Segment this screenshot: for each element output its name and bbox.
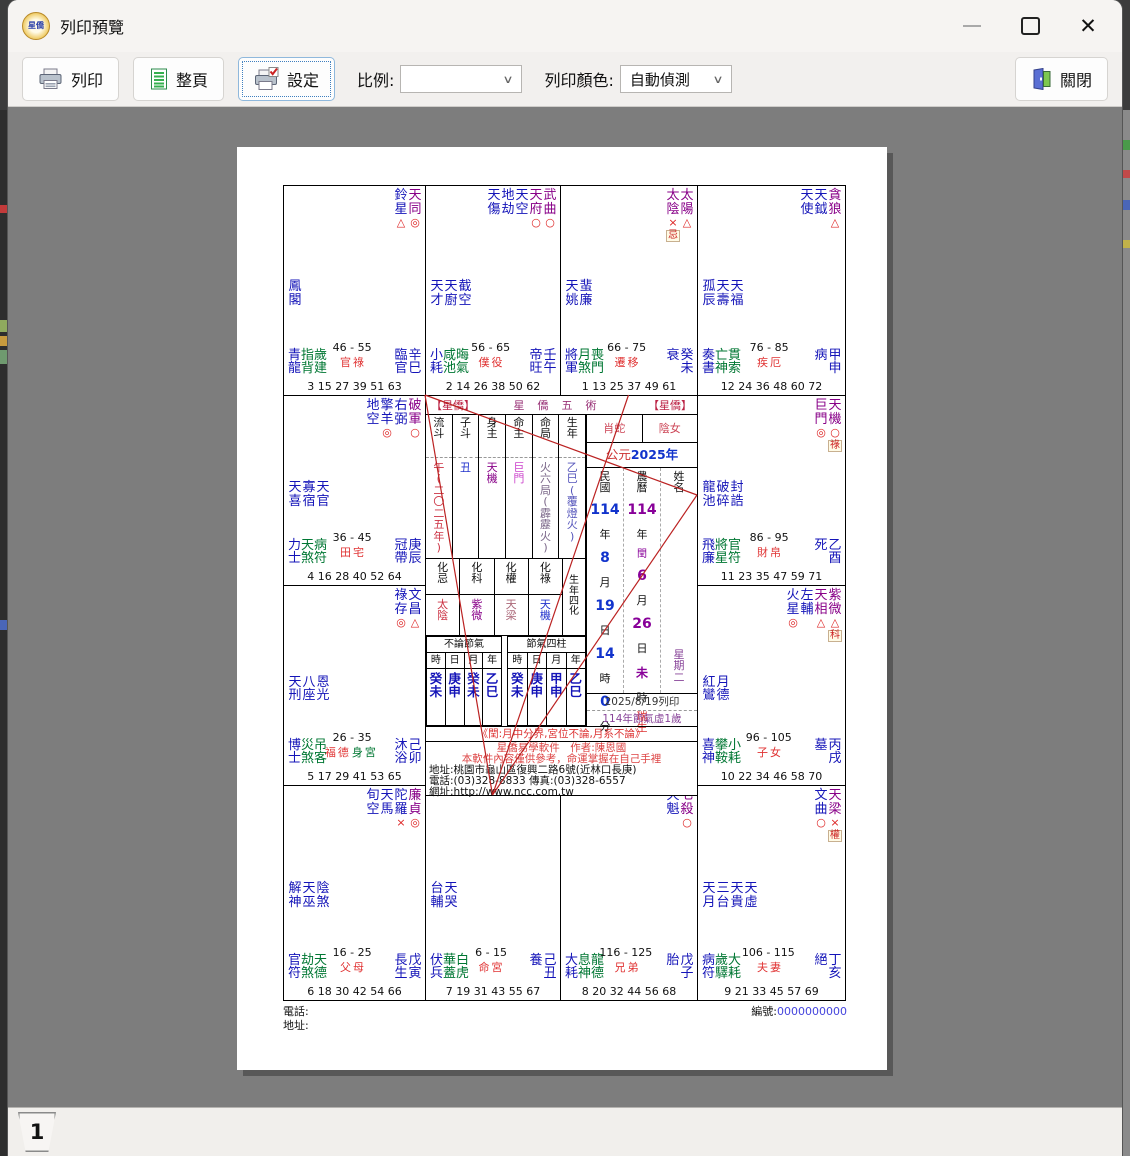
star-brightness-mark: △ — [831, 217, 839, 229]
zodiac-gender-row: 肖蛇 陰女 — [587, 414, 697, 443]
star-火星: 火星◎ — [786, 589, 800, 642]
label: 身主 — [487, 417, 498, 457]
date-item: 26 — [632, 616, 651, 632]
star-info-column: 生年乙巳(覆燈火) — [559, 414, 585, 558]
sihua-value: 紫微 — [471, 595, 482, 622]
pillars-term-table: 節氣四柱 時日月年癸未庚申甲申乙巳 — [507, 636, 586, 726]
close-window-button[interactable]: ✕ — [1076, 14, 1100, 38]
pillar-values: 癸未庚申甲申乙巳 — [508, 669, 585, 725]
top-stars: 旬空天馬陀羅×廉貞◎ — [366, 789, 422, 829]
stage-and-stem-branch: 衰癸未 — [666, 349, 694, 376]
age-numbers: 12 24 36 48 60 72 — [698, 380, 845, 393]
stage-and-stem-branch: 墓丙戌 — [814, 739, 842, 766]
star-太陰: 太陰×忌 — [666, 189, 680, 242]
star-天月: 天月 — [702, 882, 716, 909]
body-palace-tag: 身宮 — [352, 746, 378, 759]
star-台輔: 台輔 — [430, 882, 444, 909]
aux-stars: 飛廉將星官符 — [702, 539, 741, 566]
aux-stars: 青龍指背歲建 — [288, 349, 327, 376]
label: 化祿 — [540, 562, 551, 594]
date-item: 6 — [637, 568, 647, 584]
settings-button[interactable]: 設定 — [238, 57, 335, 101]
value: 丑 — [460, 462, 471, 473]
star-祿存: 祿存◎ — [394, 589, 408, 629]
palace-name: 兄弟 — [614, 959, 640, 975]
sihua-header: 化忌 — [426, 559, 459, 595]
palace-name: 田宅 — [340, 544, 366, 560]
four-transformations-table: 化忌太陰化科紫微化權天梁化祿天機生年四化 — [426, 558, 586, 636]
star-info-header: 命主 — [506, 414, 532, 458]
star-青龍: 青龍 — [288, 349, 301, 376]
star-巨門: 巨門◎ — [814, 399, 828, 452]
pillar-values: 癸未庚申癸未乙巳 — [427, 669, 501, 725]
life-stage: 帝旺 — [529, 349, 543, 376]
sihua-header: 化權 — [495, 559, 528, 595]
life-stage: 養 — [529, 954, 543, 981]
title-bar[interactable]: 星僑 列印預覽 ✕ — [8, 0, 1122, 52]
star-文曲: 文曲○ — [814, 789, 828, 842]
star-將星: 將星 — [715, 539, 728, 566]
age-range: 116 - 125 — [599, 946, 652, 959]
pillar-header: 年 — [567, 653, 586, 668]
pillar-cell: 癸未 — [427, 669, 446, 725]
star-天機: 天機○祿 — [828, 399, 842, 452]
star-brightness-mark: ◎ — [788, 617, 798, 629]
stem-branch: 己卯 — [408, 739, 422, 766]
age-numbers: 3 15 27 39 51 63 — [284, 380, 425, 393]
age-range: 106 - 115 — [742, 946, 795, 959]
star-天鉞: 天鉞 — [814, 189, 828, 229]
date-column-header: 民國 — [600, 471, 611, 494]
star-三台: 三台 — [716, 882, 730, 909]
star-info-value: 巨門 — [513, 458, 524, 485]
pillars-no-term-title: 不論節氣 — [427, 637, 501, 653]
life-stage: 衰 — [666, 349, 680, 376]
background-artifact — [0, 350, 8, 364]
pillar-value: 癸未 — [511, 672, 524, 725]
date-item: 時 — [600, 670, 611, 686]
minimize-icon — [963, 25, 981, 27]
star-brightness-mark: △ — [831, 617, 839, 629]
palace-name: 夫妻 — [757, 959, 783, 975]
top-stars: 地空擎羊◎右弼破軍○ — [366, 399, 422, 439]
star-病符: 病符 — [702, 954, 715, 981]
background-window-strip-left — [0, 110, 8, 1156]
window-title: 列印預覽 — [60, 14, 124, 38]
minor-stars: 解神天巫陰煞 — [288, 882, 330, 909]
palace-name: 命宮 — [478, 959, 504, 975]
sihua-header: 化科 — [460, 559, 493, 595]
value: 天機 — [487, 462, 498, 485]
star-指背: 指背 — [301, 349, 314, 376]
close-button[interactable]: 關閉 — [1015, 57, 1108, 101]
minimize-button[interactable] — [960, 14, 984, 38]
star-地劫: 地劫 — [501, 189, 515, 229]
aux-stars: 官符劫煞天德 — [288, 954, 327, 981]
star-info-table: 流斗午(二〇二五年)子斗丑身主天機命主巨門命局火六局(霹靂火)生年乙巳(覆燈火) — [426, 414, 586, 558]
label: 流斗 — [433, 417, 444, 457]
palace-cell-癸未: 太陰×忌太陽△天姚蜚廉將軍月煞喪門66 - 75遷移衰癸未1 13 25 37 … — [560, 185, 698, 396]
palace-cell-己丑: 台輔天哭伏兵華蓋白虎6 - 15命宮養己丑7 19 31 43 55 67 — [425, 785, 561, 1001]
top-stars: 天傷地劫天空天府○武曲○ — [487, 189, 557, 229]
star-brightness-mark: △ — [397, 217, 405, 229]
star-天福: 天福 — [730, 280, 744, 307]
minor-stars: 天才天廚截空 — [430, 280, 472, 307]
date-column-姓名: 姓名星期二 — [660, 468, 697, 693]
star-攀鞍: 攀鞍 — [715, 739, 728, 766]
sihua-value: 天機 — [540, 595, 551, 622]
stage-and-stem-branch: 死乙酉 — [814, 539, 842, 566]
full-page-button[interactable]: 整頁 — [133, 57, 224, 101]
star-天哭: 天哭 — [444, 882, 458, 909]
top-stars: 文曲○天梁×權 — [814, 789, 842, 842]
aux-stars: 喜神攀鞍小耗 — [702, 739, 741, 766]
sihua-header: 化祿 — [529, 559, 562, 595]
star-力士: 力士 — [288, 539, 301, 566]
transformation-tag: 科 — [828, 630, 842, 643]
pillar-cell: 庚申 — [446, 669, 465, 725]
age-range: 66 - 75 — [607, 341, 646, 354]
aux-stars: 力士天煞病符 — [288, 539, 327, 566]
star-brightness-mark: × — [830, 817, 839, 829]
sihua-column: 化祿天機 — [529, 559, 563, 635]
star-歲建: 歲建 — [314, 349, 327, 376]
star-brightness-mark: △ — [817, 617, 825, 629]
pillars-term-title: 節氣四柱 — [508, 637, 585, 653]
title: 生年四化 — [569, 576, 579, 618]
app-logo-icon: 星僑 — [22, 12, 50, 40]
background-artifact — [1122, 240, 1130, 248]
full-page-icon — [149, 68, 169, 90]
pillar-header: 日 — [528, 653, 548, 668]
star-貫索: 貫索 — [728, 349, 741, 376]
sihua-column: 化科紫微 — [460, 559, 494, 635]
chevron-down-icon: ∨ — [712, 73, 723, 86]
life-stage: 絕 — [814, 954, 828, 981]
print-color-dropdown[interactable]: 自動偵測 ∨ — [620, 65, 732, 93]
label: 化權 — [506, 562, 517, 594]
star-八座: 八座 — [302, 676, 316, 703]
star-天煞: 天煞 — [301, 539, 314, 566]
star-brightness-mark: ○ — [531, 217, 541, 229]
pillar-value: 乙巳 — [486, 672, 499, 725]
minor-stars: 鳳閣 — [288, 280, 302, 307]
age-numbers: 5 17 29 41 53 65 — [284, 770, 425, 783]
pillar-value: 庚申 — [448, 672, 461, 725]
scale-dropdown[interactable]: ∨ — [400, 65, 522, 93]
star-右弼: 右弼 — [394, 399, 408, 439]
star-brightness-mark: ○ — [545, 217, 555, 229]
date-item: 14 — [595, 646, 614, 662]
star-brightness-mark: ◎ — [396, 617, 406, 629]
brand-left: 【星僑】 — [431, 397, 475, 413]
star-封誥: 封誥 — [730, 481, 744, 508]
star-白虎: 白虎 — [456, 954, 469, 981]
star-劫煞: 劫煞 — [301, 954, 314, 981]
minor-stars: 台輔天哭 — [430, 882, 458, 909]
star-大耗: 大耗 — [728, 954, 741, 981]
print-color-dropdown-value: 自動偵測 — [630, 69, 690, 90]
age-range: 76 - 85 — [750, 341, 789, 354]
palace-cell-辛巳: 鈴星△天同◎鳳閣青龍指背歲建46 - 55官祿臨官辛巳3 15 27 39 51… — [283, 185, 426, 396]
aux-stars: 大耗息神龍德 — [565, 954, 604, 981]
pillar-cell: 乙巳 — [483, 669, 501, 725]
footer-line: 電話:(03)328-8833 傳真:(03)328-6557 — [426, 776, 697, 787]
star-info-column: 命局火六局(霹靂火) — [533, 414, 560, 558]
date-column-民國: 民國114年8月19日14時0分 — [587, 468, 623, 693]
minor-stars: 紅鸞月德 — [702, 676, 730, 703]
stage-and-stem-branch: 絕丁亥 — [814, 954, 842, 981]
age-range: 36 - 45 — [333, 531, 372, 544]
label: 化科 — [471, 562, 482, 594]
life-stage: 胎 — [666, 954, 680, 981]
star-奏書: 奏書 — [702, 349, 715, 376]
star-天虛: 天虛 — [744, 882, 758, 909]
age-range: 96 - 105 — [746, 731, 792, 744]
top-stars: 祿存◎文昌△ — [394, 589, 422, 629]
print-button[interactable]: 列印 — [22, 57, 119, 101]
top-stars: 巨門◎天機○祿 — [814, 399, 842, 452]
date-item: 19 — [595, 598, 614, 614]
star-天空: 天空 — [515, 189, 529, 229]
page-address-label: 地址: — [283, 1017, 309, 1033]
star-大耗: 大耗 — [565, 954, 578, 981]
weekday: 星期二 — [674, 649, 685, 683]
star-天刑: 天刑 — [288, 676, 302, 703]
stage-and-stem-branch: 冠帶庚辰 — [394, 539, 422, 566]
background-artifact — [0, 320, 8, 332]
star-孤辰: 孤辰 — [702, 280, 716, 307]
age-numbers: 8 20 32 44 56 68 — [561, 985, 697, 998]
stem-branch: 庚辰 — [408, 539, 422, 566]
chart-center-panel: 【星僑】 星僑五術 【星僑】 流斗午(二〇二五年)子斗丑身主天機命主巨門命局火六… — [425, 395, 698, 796]
star-寡宿: 寡宿 — [302, 481, 316, 508]
life-stage: 臨官 — [394, 349, 408, 376]
star-災煞: 災煞 — [301, 739, 314, 766]
aux-stars: 奏書亡神貫索 — [702, 349, 741, 376]
star-將軍: 將軍 — [565, 349, 578, 376]
chart-grid: 【星僑】 星僑五術 【星僑】 流斗午(二〇二五年)子斗丑身主天機命主巨門命局火六… — [283, 185, 846, 1001]
date-columns: 民國114年8月19日14時0分農曆114年閏6月26日未時瑞生姓名星期二 — [587, 468, 697, 693]
birth-data-panel: 肖蛇 陰女 公元2025年 民國114年8月19日14時0分農曆114年閏6月2… — [586, 414, 697, 726]
value: 午(二〇二五年) — [433, 462, 444, 554]
palace-name: 僕役 — [478, 354, 504, 370]
star-天梁: 天梁×權 — [828, 789, 842, 842]
sihua-value: 天梁 — [506, 595, 517, 622]
star-info-header: 命局 — [533, 414, 559, 458]
pillar-cell: 乙巳 — [567, 669, 586, 725]
star-brightness-mark: ○ — [816, 817, 826, 829]
top-stars: 火星◎左輔天相△紫微△科 — [786, 589, 842, 642]
pillar-header: 年 — [483, 653, 501, 668]
background-artifact — [0, 336, 8, 346]
palace-name: 財帛 — [757, 544, 783, 560]
star-喪門: 喪門 — [591, 349, 604, 376]
star-鳳閣: 鳳閣 — [288, 280, 302, 307]
pillar-header: 時 — [427, 653, 446, 668]
stage-and-stem-branch: 臨官辛巳 — [394, 349, 422, 376]
star-小耗: 小耗 — [430, 349, 443, 376]
top-stars: 鈴星△天同◎ — [394, 189, 422, 229]
stem-branch: 壬午 — [543, 349, 557, 376]
palace-cell-庚辰: 地空擎羊◎右弼破軍○天喜寡宿天官力士天煞病符36 - 45田宅冠帶庚辰4 16 … — [283, 395, 426, 586]
star-info-header: 子斗 — [453, 414, 479, 458]
star-病符: 病符 — [314, 539, 327, 566]
scale-label: 比例: — [357, 67, 394, 91]
gregorian-year: 2025年 — [631, 447, 678, 462]
sihua-title: 生年四化 — [563, 559, 585, 635]
brand-right: 【星僑】 — [648, 397, 692, 413]
minor-stars: 龍池破碎封誥 — [702, 481, 744, 508]
pillar-header: 日 — [446, 653, 465, 668]
age-range: 26 - 35 — [333, 731, 372, 744]
close-door-icon — [1031, 68, 1053, 90]
date-item: 8 — [600, 550, 610, 566]
star-info-header: 身主 — [479, 414, 505, 458]
value: 紫微 — [471, 599, 482, 622]
leap-month-note: 《閏:月中分界,宮位不論,月系不論》 — [426, 726, 697, 742]
pillars-tables: 不論節氣 時日月年癸未庚申癸未乙巳 節氣四柱 時日月年癸未庚申甲申乙巳 — [426, 636, 586, 726]
close-button-label: 關閉 — [1060, 67, 1092, 91]
star-陰煞: 陰煞 — [316, 882, 330, 909]
star-天府: 天府○ — [529, 189, 543, 229]
value: 火六局(霹靂火) — [540, 462, 551, 554]
star-brightness-mark: × — [668, 217, 677, 229]
star-太陽: 太陽△ — [680, 189, 694, 242]
sihua-value: 太陰 — [437, 595, 448, 622]
age-numbers: 1 13 25 37 49 61 — [561, 380, 697, 393]
stem-branch: 戊子 — [680, 954, 694, 981]
star-天德: 天德 — [314, 954, 327, 981]
palace-cell-戊子: 天魁七殺○大耗息神龍德116 - 125兄弟胎戊子8 20 32 44 56 6… — [560, 785, 698, 1001]
maximize-button[interactable] — [1018, 14, 1042, 38]
star-info-header: 生年 — [559, 414, 585, 458]
pillar-headers: 時日月年 — [508, 653, 585, 669]
star-info-column: 身主天機 — [479, 414, 506, 558]
palace-name: 福德身宮 — [325, 744, 378, 760]
chart-brand-header: 【星僑】 星僑五術 【星僑】 — [426, 396, 697, 415]
stage-and-stem-branch: 養己丑 — [529, 954, 557, 981]
star-brightness-mark: ◎ — [816, 427, 826, 439]
minor-stars: 天姚蜚廉 — [565, 280, 593, 307]
date-column-header: 農曆 — [637, 471, 648, 494]
background-artifact — [1122, 170, 1130, 178]
age-numbers: 10 22 34 46 58 70 — [698, 770, 845, 783]
star-截空: 截空 — [458, 280, 472, 307]
printer-icon — [38, 68, 64, 90]
date-item: 閏 — [637, 545, 647, 560]
aux-stars: 病符歲驛大耗 — [702, 954, 741, 981]
pillar-value: 甲申 — [550, 672, 563, 725]
printer-settings-icon — [254, 67, 280, 91]
star-info-value: 午(二〇二五年) — [433, 458, 444, 554]
life-stage: 死 — [814, 539, 828, 566]
star-天相: 天相△ — [814, 589, 828, 642]
print-color-label: 列印顏色: — [544, 67, 613, 91]
label: 命局 — [540, 417, 551, 457]
pillar-value: 癸未 — [430, 672, 443, 725]
star-廉貞: 廉貞◎ — [408, 789, 422, 829]
top-stars: 太陰×忌太陽△ — [666, 189, 694, 242]
stem-branch: 甲申 — [828, 349, 842, 376]
age-numbers: 6 18 30 42 54 66 — [284, 985, 425, 998]
star-官符: 官符 — [288, 954, 301, 981]
aux-stars: 小耗咸池晦氣 — [430, 349, 469, 376]
palace-name: 子女 — [757, 744, 783, 760]
age-numbers: 11 23 35 47 59 71 — [698, 570, 845, 583]
aux-stars: 將軍月煞喪門 — [565, 349, 604, 376]
serial-number: 編號:0000000000 — [751, 1003, 847, 1019]
date-column-header: 姓名 — [674, 471, 685, 494]
minor-stars: 天月三台天貴天虛 — [702, 882, 758, 909]
stage-and-stem-branch: 胎戊子 — [666, 954, 694, 981]
star-天官: 天官 — [316, 481, 330, 508]
pillars-no-term-table: 不論節氣 時日月年癸未庚申癸未乙巳 — [426, 636, 502, 726]
star-解神: 解神 — [288, 882, 302, 909]
age-numbers: 4 16 28 40 52 64 — [284, 570, 425, 583]
palace-name: 疾厄 — [757, 354, 783, 370]
star-鈴星: 鈴星△ — [394, 189, 408, 229]
star-天使: 天使 — [800, 189, 814, 229]
star-info-column: 命主巨門 — [506, 414, 533, 558]
stem-branch: 辛巳 — [408, 349, 422, 376]
value: 太陰 — [437, 599, 448, 622]
star-地空: 地空 — [366, 399, 380, 439]
preview-page: 【星僑】 星僑五術 【星僑】 流斗午(二〇二五年)子斗丑身主天機命主巨門命局火六… — [237, 147, 887, 1070]
transformation-tag: 祿 — [828, 440, 842, 453]
star-文昌: 文昌△ — [408, 589, 422, 629]
stage-and-stem-branch: 病甲申 — [814, 349, 842, 376]
page-tab-1[interactable]: 1 — [18, 1112, 56, 1152]
palace-name: 父母 — [340, 959, 366, 975]
age-numbers: 9 21 33 45 57 69 — [698, 985, 845, 998]
star-info-column: 子斗丑 — [453, 414, 480, 558]
date-column-農曆: 農曆114年閏6月26日未時瑞生 — [623, 468, 660, 693]
palace-cell-甲申: 天使天鉞貪狼△孤辰天壽天福奏書亡神貫索76 - 85疾厄病甲申12 24 36 … — [697, 185, 846, 396]
value: 天梁 — [506, 599, 517, 622]
star-旬空: 旬空 — [366, 789, 380, 829]
stage-and-stem-branch: 沐浴己卯 — [394, 739, 422, 766]
date-item: 114 — [627, 502, 656, 518]
star-亡神: 亡神 — [715, 349, 728, 376]
star-紫微: 紫微△科 — [828, 589, 842, 642]
pillar-value: 乙巳 — [569, 672, 582, 725]
age-range: 46 - 55 — [333, 341, 372, 354]
star-天貴: 天貴 — [730, 882, 744, 909]
star-月煞: 月煞 — [578, 349, 591, 376]
aux-stars: 伏兵華蓋白虎 — [430, 954, 469, 981]
palace-cell-戊寅: 旬空天馬陀羅×廉貞◎解神天巫陰煞官符劫煞天德16 - 25父母長生戊寅6 18 … — [283, 785, 426, 1001]
palace-name: 遷移 — [614, 354, 640, 370]
star-天姚: 天姚 — [565, 280, 579, 307]
pillar-header: 時 — [508, 653, 528, 668]
date-item: 月 — [600, 574, 611, 590]
toolbar: 列印 整頁 設定 比例: ∨ 列印顏色: 自動偵測 ∨ 關閉 — [8, 52, 1122, 107]
star-華蓋: 華蓋 — [443, 954, 456, 981]
star-天傷: 天傷 — [487, 189, 501, 229]
stem-branch: 己丑 — [543, 954, 557, 981]
brand-center: 星僑五術 — [514, 397, 610, 413]
pillar-cell: 癸未 — [508, 669, 528, 725]
value: 天機 — [540, 599, 551, 622]
star-天喜: 天喜 — [288, 481, 302, 508]
age-range: 56 - 65 — [471, 341, 510, 354]
star-天同: 天同◎ — [408, 189, 422, 229]
star-左輔: 左輔 — [800, 589, 814, 642]
star-info-value: 火六局(霹靂火) — [540, 458, 551, 554]
background-artifact — [1122, 200, 1130, 210]
chevron-down-icon: ∨ — [503, 73, 514, 86]
